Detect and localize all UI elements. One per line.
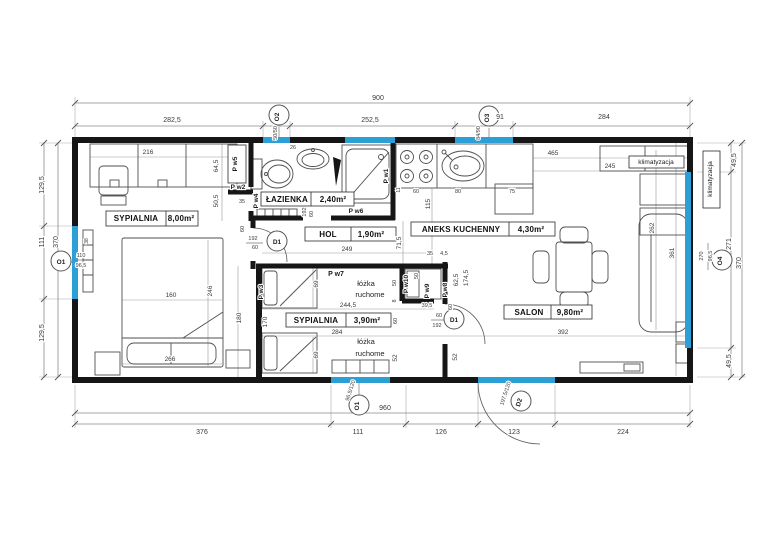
part-pw1: P w1 — [383, 168, 390, 183]
dim-465: 465 — [548, 150, 559, 157]
dim-52-b: 52 — [452, 353, 459, 361]
anno-lozka2-a: łóżka — [357, 337, 375, 346]
anno-lozka1-b: ruchome — [355, 290, 384, 299]
dim-right-370: 370 — [736, 257, 743, 269]
dim-left-111: 111 — [39, 237, 46, 248]
dim-245: 245 — [605, 163, 616, 170]
part-pw10: P w10 — [403, 274, 410, 293]
room-sypialnia1-area: 8,00m² — [168, 214, 195, 223]
dim-71-5: 71,5 — [396, 236, 403, 249]
dim-75: 75 — [509, 189, 515, 195]
dim-top-282-5: 282,5 — [163, 117, 181, 124]
dim-d1hol-192: 192 — [248, 236, 257, 242]
dim-35-b: 35 — [427, 251, 433, 257]
chair-top — [560, 227, 588, 243]
windows-layer — [75, 140, 688, 380]
marker-d1-hol: D1 — [273, 239, 282, 246]
dim-o1-left-w: 110 — [77, 253, 86, 259]
drawer-unit — [332, 360, 389, 373]
dim-bathdoor-192: 192 — [302, 207, 308, 216]
dim-right-49-5-a: 49,5 — [731, 153, 738, 167]
floor-plan-page: 900282,5252,591284O250/50O384/90129,5111… — [0, 0, 768, 543]
dim-top-252-5: 252,5 — [361, 117, 379, 124]
dim-o4-h: 96,5 — [708, 251, 714, 262]
dim-closet-60: 60 — [448, 304, 454, 310]
marker-o4: O4 — [717, 256, 724, 265]
floor-plan-drawing: 900282,5252,591284O250/50O384/90129,5111… — [0, 0, 768, 543]
dim-160: 160 — [166, 292, 177, 299]
dining-table — [533, 227, 608, 308]
anno-lozka2-b: ruchome — [355, 349, 384, 358]
dim-246: 246 — [207, 285, 214, 296]
dim-bathdoor-60: 60 — [309, 211, 315, 217]
dim-hol-60: 60 — [240, 226, 246, 232]
dim-top-91: 91 — [496, 114, 504, 121]
dim-o2-size: 50/50 — [273, 126, 279, 140]
dim-26: 26 — [290, 145, 296, 151]
room-aneks-area: 4,30m² — [518, 225, 545, 234]
marker-o1-left: O1 — [57, 259, 66, 266]
anno-klimatyzacja-out: klimatyzacja — [707, 161, 714, 197]
dim-361: 361 — [669, 247, 676, 258]
dim-left-370: 370 — [53, 236, 60, 248]
dim-80: 80 — [455, 189, 461, 195]
dim-8: 8 — [392, 299, 398, 302]
room-hol-area: 1,90m² — [358, 230, 385, 239]
single-bed-top — [262, 268, 317, 308]
dim-170: 170 — [262, 316, 269, 327]
dim-d1salon-60: 60 — [436, 313, 442, 319]
dim-62-5: 62,5 — [453, 273, 460, 286]
anno-klimatyzacja-in: klimatyzacja — [638, 159, 674, 166]
dim-11: 11 — [396, 187, 402, 192]
marker-o2: O2 — [274, 112, 281, 121]
dim-50-a: 50 — [392, 280, 398, 286]
dim-left-129-5-a: 129,5 — [39, 176, 46, 194]
tv-bench — [580, 362, 643, 373]
dim-d1salon-192: 192 — [432, 323, 441, 329]
dim-bot-376: 376 — [196, 429, 208, 436]
room-sypialnia2-area: 3,90m² — [354, 316, 381, 325]
dim-right-271: 271 — [726, 238, 733, 250]
anno-lozka1-a: łóżka — [357, 279, 375, 288]
dim-64-5: 64,5 — [213, 159, 220, 172]
room-lazienka-area: 2,40m² — [320, 195, 347, 204]
part-pw6: P w6 — [349, 208, 364, 215]
room-salon-name: SALON — [515, 308, 544, 317]
marker-d1-salon: D1 — [450, 317, 459, 324]
dim-249: 249 — [342, 246, 353, 253]
washbasin — [297, 149, 329, 170]
dim-39-5: 39,5 — [422, 303, 433, 309]
dim-top-total: 900 — [372, 95, 384, 102]
dim-bot-960: 960 — [379, 405, 391, 412]
closet-interior — [405, 269, 441, 299]
dim-right-49-5-b: 49,5 — [726, 354, 733, 368]
nightstand-left — [95, 352, 120, 375]
dim-50-5: 50,5 — [213, 194, 220, 207]
part-pw8: P w8 — [442, 282, 449, 297]
chair-right — [592, 251, 608, 283]
dim-bot-111: 111 — [353, 429, 364, 436]
marker-o1-bottom: O1 — [354, 401, 361, 410]
dim-244-5: 244,5 — [340, 302, 357, 309]
dim-60-k: 60 — [413, 189, 419, 195]
marker-o3: O3 — [484, 113, 491, 122]
chair — [99, 166, 128, 205]
dim-50-b: 50 — [414, 273, 420, 279]
dim-115: 115 — [425, 198, 432, 209]
chair-left — [533, 251, 549, 283]
dim-174-5: 174,5 — [463, 269, 470, 286]
dim-bot-126: 126 — [435, 429, 447, 436]
dim-262: 262 — [649, 222, 656, 233]
dim-392: 392 — [558, 329, 569, 336]
dim-o4-w: 270 — [699, 251, 705, 260]
dim-284-room: 284 — [332, 329, 343, 336]
part-pw3: P w3 — [258, 284, 265, 299]
dim-60-a: 60 — [393, 318, 399, 324]
dim-bot-123: 123 — [508, 429, 520, 436]
room-salon-area: 9,80m² — [557, 308, 584, 317]
dim-180: 180 — [236, 312, 243, 323]
dim-o1-left-h: 96,5 — [76, 263, 87, 269]
dim-38: 38 — [84, 238, 90, 244]
dim-bot-224: 224 — [617, 429, 629, 436]
toilet — [251, 159, 293, 189]
dim-52-a: 52 — [392, 354, 399, 362]
dim-69-b: 69 — [313, 351, 320, 359]
dim-d1hol-60: 60 — [252, 245, 258, 251]
room-aneks-name: ANEKS KUCHENNY — [422, 225, 501, 234]
part-pw4: P w4 — [253, 193, 260, 208]
part-pw9: P w9 — [424, 283, 431, 298]
sofa — [639, 214, 688, 332]
dim-4-5: 4,5 — [440, 251, 448, 257]
stove — [401, 151, 433, 183]
part-pw2: P w2 — [231, 184, 246, 191]
dim-o3-size: 84/90 — [476, 126, 482, 140]
bathroom-door-leaf — [333, 157, 341, 186]
dim-35: 35 — [239, 199, 245, 205]
single-bed-bottom — [262, 333, 317, 373]
dim-left-129-5-b: 129,5 — [39, 324, 46, 342]
dim-266: 266 — [165, 356, 176, 363]
part-pw7: P w7 — [328, 271, 344, 278]
part-pw5: P w5 — [232, 156, 239, 171]
dim-216: 216 — [143, 149, 154, 156]
kitchen-sink — [442, 150, 484, 181]
room-hol-name: HOL — [319, 230, 337, 239]
room-sypialnia1-name: SYPIALNIA — [114, 214, 158, 223]
room-lazienka-name: ŁAZIENKA — [266, 195, 308, 204]
dim-top-284: 284 — [598, 114, 610, 121]
dim-69-a: 69 — [313, 280, 320, 288]
room-sypialnia2-name: SYPIALNIA — [294, 316, 338, 325]
